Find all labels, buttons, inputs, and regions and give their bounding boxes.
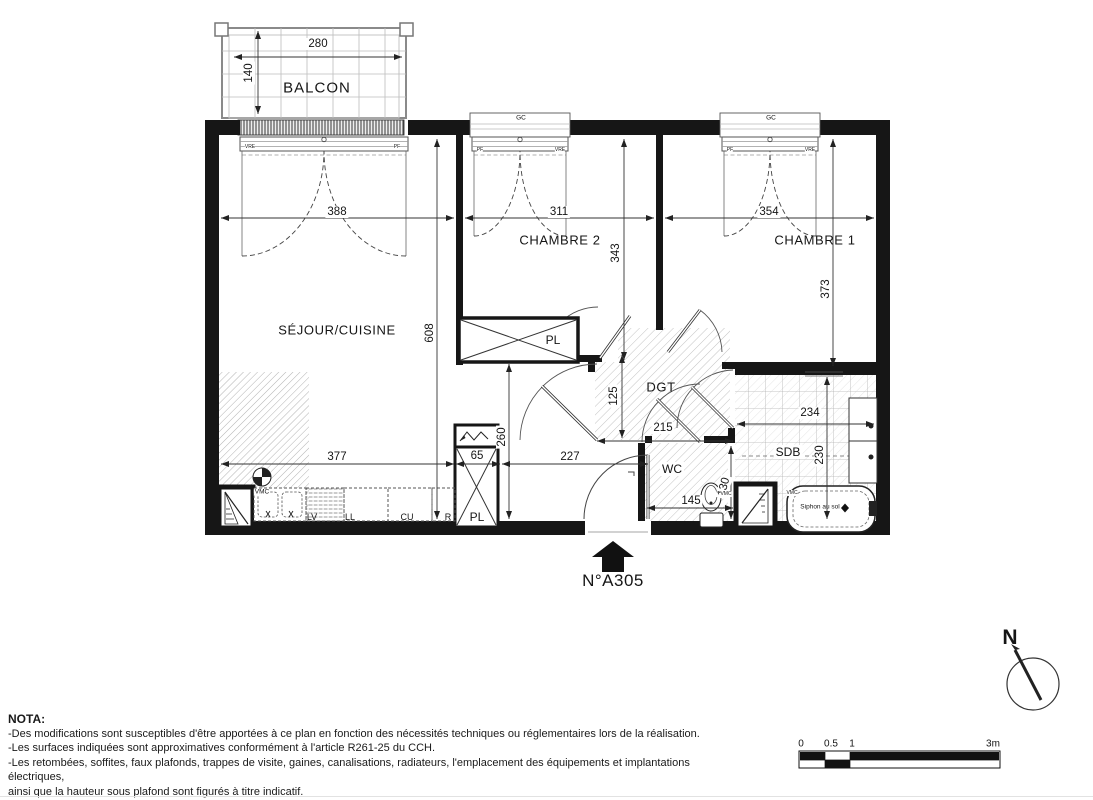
scale-tick-3m: 3m [986, 739, 1000, 750]
scale-tick-0: 0 [798, 739, 804, 750]
dim-counter-depth: 260 [496, 425, 508, 448]
vent-label-kitchen: VMC [254, 489, 270, 496]
dim-wc-width: 145 [679, 495, 702, 507]
shutter-box-label: GC [515, 115, 527, 122]
balcony-railing-grate [238, 120, 404, 135]
scale-tick-05: 0.5 [824, 739, 838, 750]
dim-kitchen-run: 377 [325, 451, 348, 463]
water-heater-box [455, 425, 498, 447]
dishwasher-label: LV [307, 512, 317, 522]
window-label-vre: VRE [805, 147, 815, 153]
window-label-pf: PF [727, 147, 733, 153]
dim-bedroom1-width: 354 [757, 206, 780, 218]
bathtub-faucet [869, 501, 877, 516]
room-label-bedroom2: CHAMBRE 2 [519, 233, 600, 248]
dim-bathroom-width: 234 [798, 407, 821, 419]
dim-bedroom2-depth: 343 [610, 241, 622, 264]
vmc-symbol [253, 468, 271, 486]
closet-label-bedroom2: PL [546, 333, 561, 347]
balcony-left-bracket [215, 23, 228, 36]
nota-line: -Des modifications sont susceptibles d'ê… [8, 727, 708, 742]
floor-drain-label: Siphon au sol [800, 504, 839, 511]
room-label-bathroom: SDB [774, 445, 803, 459]
dim-living-depth: 608 [424, 321, 436, 344]
north-label: N [1002, 626, 1017, 650]
fridge-label: R [445, 512, 452, 522]
dim-closet-width: 65 [469, 450, 486, 462]
cooker-label: CU [401, 512, 414, 522]
page-bottom-rule [0, 796, 1093, 797]
vent-label-wc: VMC [720, 491, 731, 497]
washer-label: LL [345, 512, 355, 522]
dim-bathroom-depth: 230 [814, 443, 826, 466]
dim-bedroom2-width: 311 [548, 206, 570, 218]
scale-bar [799, 751, 1000, 768]
dim-hallway-depth: 125 [608, 384, 620, 407]
nota-line: ainsi que la hauteur sous plafond sont f… [8, 785, 708, 800]
floor-plan-drawing [0, 0, 1093, 800]
dim-hallway-width: 215 [651, 422, 674, 434]
wall-bathroom-top [735, 368, 876, 375]
dim-entry-run: 227 [558, 451, 581, 463]
floor-plan-page: BALCON 280 140 GC GC VRE PF PF VRE PF VR… [0, 0, 1093, 800]
wall-right [876, 120, 890, 535]
window-label-pf: PF [477, 147, 483, 153]
nota-block: NOTA: -Des modifications sont susceptibl… [8, 712, 708, 800]
window-label-pf: PF [394, 144, 400, 150]
vent-label-bathroom: VMC [786, 490, 797, 496]
room-label-bedroom1: CHAMBRE 1 [774, 233, 855, 248]
dim-balcony-width: 280 [306, 38, 329, 50]
window-living [240, 137, 408, 256]
room-label-balcony: BALCON [283, 80, 351, 97]
unit-number-label: N°A305 [582, 571, 644, 591]
wall-chambre2-chambre1 [656, 135, 663, 330]
nota-line: -Les retombées, soffites, faux plafonds,… [8, 756, 708, 785]
window-label-vre: VRE [245, 144, 255, 150]
closet-label-kitchen: PL [470, 510, 485, 524]
shutter-box-label: GC [765, 115, 777, 122]
toilet-tank [700, 513, 723, 527]
room-label-hallway: DGT [646, 380, 675, 395]
window-label-vre: VRE [555, 147, 565, 153]
balcony-right-bracket [400, 23, 413, 36]
closets [455, 318, 578, 527]
nota-title: NOTA: [8, 712, 708, 727]
room-label-living: SÉJOUR/CUISINE [278, 323, 395, 338]
dim-bedroom1-depth: 373 [820, 277, 832, 300]
dim-living-width: 388 [325, 206, 348, 218]
wall-left [205, 120, 219, 535]
scale-tick-1: 1 [849, 739, 855, 750]
dim-balcony-depth: 140 [243, 61, 255, 84]
towel-radiator [849, 398, 877, 483]
room-label-wc: WC [660, 462, 684, 476]
nota-line: -Les surfaces indiquées sont approximati… [8, 741, 708, 756]
north-compass [1007, 644, 1059, 710]
entrance-arrow [592, 541, 634, 572]
